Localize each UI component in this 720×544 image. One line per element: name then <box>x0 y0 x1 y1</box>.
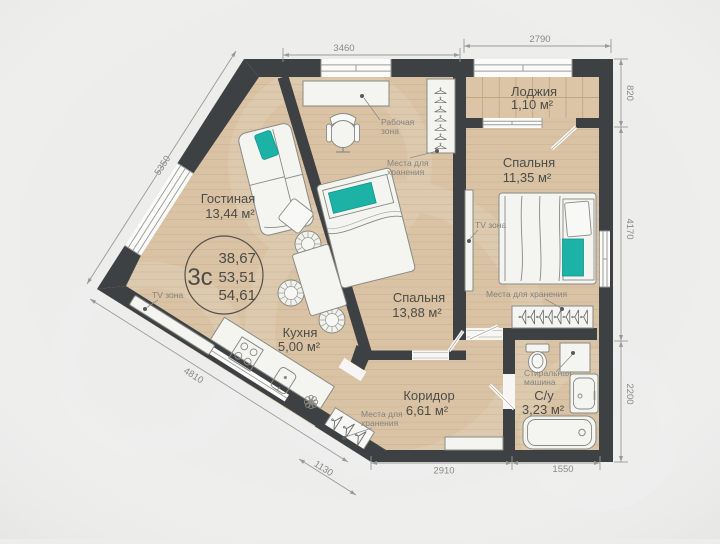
svg-text:TV зона: TV зона <box>475 220 506 230</box>
svg-text:хранения: хранения <box>361 418 399 428</box>
svg-text:2910: 2910 <box>433 466 454 477</box>
svg-text:2200: 2200 <box>624 383 635 404</box>
svg-text:13,44 м²: 13,44 м² <box>205 206 255 221</box>
svg-text:Гостиная: Гостиная <box>201 191 256 206</box>
svg-text:С/у: С/у <box>534 388 554 403</box>
svg-text:Спальня: Спальня <box>393 290 445 305</box>
svg-text:11,35 м²: 11,35 м² <box>503 170 552 185</box>
svg-text:1550: 1550 <box>552 464 573 475</box>
svg-text:5,00 м²: 5,00 м² <box>278 339 321 354</box>
svg-text:хранения: хранения <box>387 167 425 177</box>
svg-text:Места для хранения: Места для хранения <box>486 289 567 299</box>
svg-text:машина: машина <box>524 377 556 387</box>
svg-text:3,23 м²: 3,23 м² <box>522 402 565 417</box>
svg-text:TV зона: TV зона <box>152 290 183 300</box>
svg-text:1,10 м²: 1,10 м² <box>511 97 554 112</box>
svg-text:3с: 3с <box>187 264 212 291</box>
svg-text:54,61: 54,61 <box>218 287 256 304</box>
svg-text:53,51: 53,51 <box>218 269 256 286</box>
svg-text:820: 820 <box>624 85 635 101</box>
svg-text:4170: 4170 <box>624 218 635 239</box>
svg-text:6,61 м²: 6,61 м² <box>406 403 449 418</box>
svg-text:38,67: 38,67 <box>218 250 256 267</box>
svg-text:зона: зона <box>381 126 399 136</box>
svg-text:2790: 2790 <box>529 34 550 45</box>
svg-text:Коридор: Коридор <box>403 388 454 403</box>
svg-text:3460: 3460 <box>333 43 354 54</box>
svg-text:Кухня: Кухня <box>283 325 318 340</box>
svg-text:13,88 м²: 13,88 м² <box>392 305 442 320</box>
svg-text:Спальня: Спальня <box>503 155 555 170</box>
